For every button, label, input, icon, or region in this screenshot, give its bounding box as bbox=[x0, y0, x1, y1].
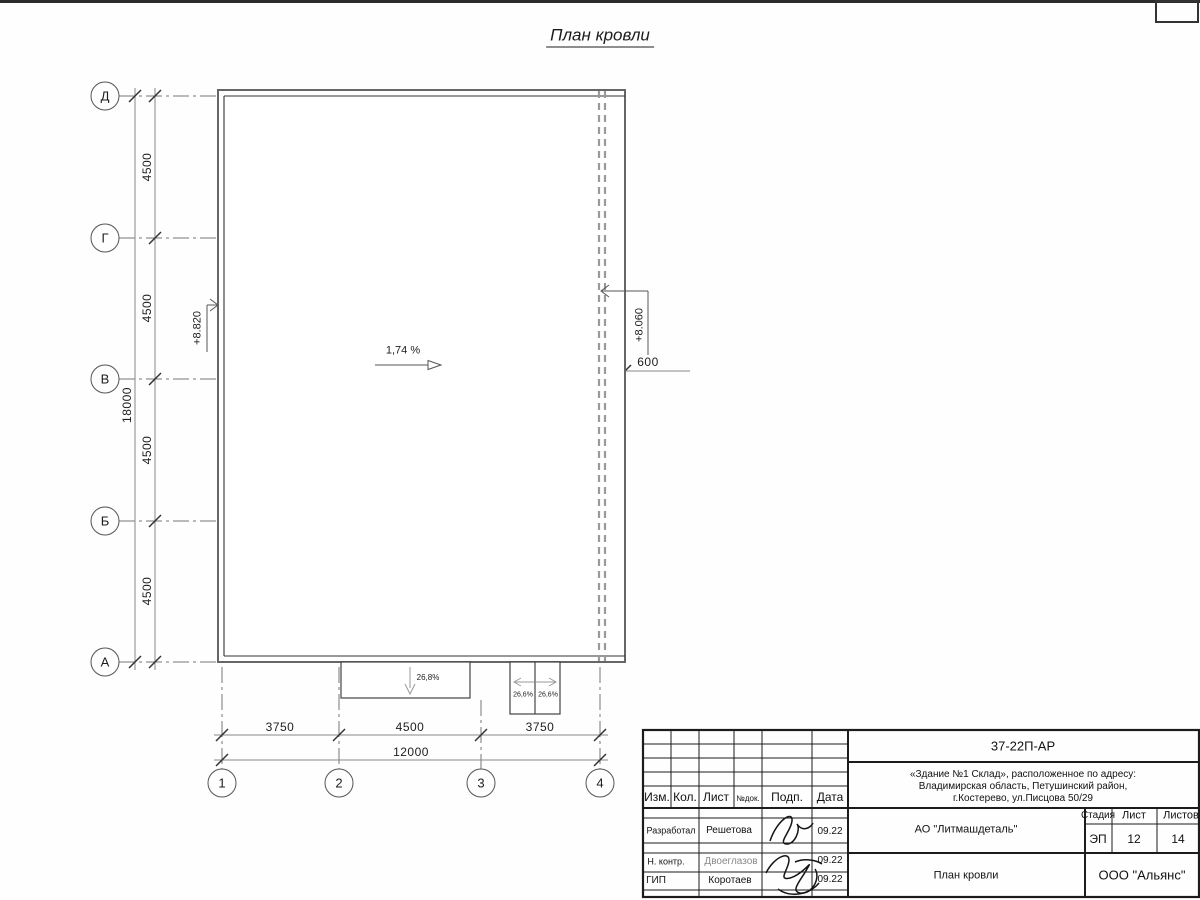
titleblock-header-ndok: №док. bbox=[736, 795, 759, 803]
dim-row-4: 4500 bbox=[141, 577, 153, 606]
titleblock-sheet-label: Лист bbox=[1122, 811, 1146, 822]
titleblock-address-line1: «Здание №1 Склад», расположенное по адре… bbox=[910, 770, 1136, 780]
main-slope-label: 1,74 % bbox=[386, 346, 420, 357]
corner-stamp-box bbox=[1156, 1, 1198, 22]
titleblock-name-gip: Коротаев bbox=[708, 876, 751, 886]
axis-row-label-d: Д bbox=[101, 90, 110, 103]
axis-row-label-g: Г bbox=[101, 232, 108, 245]
elevation-high-label: +8.820 bbox=[193, 311, 204, 345]
axis-col-label-1: 1 bbox=[218, 777, 225, 790]
titleblock-header-podp: Подп. bbox=[771, 791, 803, 803]
axis-col-label-3: 3 bbox=[477, 777, 484, 790]
dim-col-2: 4500 bbox=[396, 721, 425, 733]
drawing-title: План кровли bbox=[546, 27, 654, 48]
titleblock-name-razrabotal: Решетова bbox=[706, 826, 752, 836]
titleblock-company: ООО "Альянс" bbox=[1099, 869, 1186, 882]
signature-gip bbox=[766, 856, 822, 894]
canopy-slope-label: 26,8% bbox=[417, 674, 440, 682]
titleblock-header-kol: Кол. bbox=[673, 791, 697, 803]
titleblock-header-izm: Изм. bbox=[644, 791, 670, 803]
dim-col-1: 3750 bbox=[266, 721, 295, 733]
titleblock-header-list: Лист bbox=[703, 791, 729, 803]
titleblock-address-line2: Владимирская область, Петушинский район, bbox=[919, 782, 1128, 792]
roof-outline bbox=[218, 90, 625, 662]
axis-row-label-b: Б bbox=[101, 515, 110, 528]
titleblock-client: АО "Литмашдеталь" bbox=[915, 825, 1018, 836]
titleblock-date-gip: 09.22 bbox=[817, 875, 842, 885]
axis-col-label-2: 2 bbox=[335, 777, 342, 790]
titleblock-stage-value: ЭП bbox=[1089, 833, 1106, 845]
titleblock-sheet-value: 12 bbox=[1127, 833, 1140, 845]
titleblock-date-razrabotal: 09.22 bbox=[817, 827, 842, 837]
porch-slope-right-label: 26,6% bbox=[538, 692, 558, 699]
titleblock-doc-code: 37-22П-АР bbox=[991, 740, 1055, 753]
dim-col-3: 3750 bbox=[526, 721, 555, 733]
titleblock-sheets-value: 14 bbox=[1171, 833, 1184, 845]
roof-plan-drawing bbox=[0, 0, 1200, 900]
axis-col-label-4: 4 bbox=[596, 777, 603, 790]
axis-row-label-a: А bbox=[101, 656, 110, 669]
dim-gutter: 600 bbox=[637, 356, 659, 368]
titleblock-date-nkontr: 09.22 bbox=[817, 856, 842, 866]
titleblock-role-razrabotal: Разработал bbox=[647, 827, 696, 836]
signature-razrabotal bbox=[770, 816, 813, 844]
titleblock-name-nkontr: Двоеглазов bbox=[704, 857, 757, 867]
elevation-high-leader bbox=[207, 299, 218, 352]
titleblock-header-data: Дата bbox=[817, 791, 844, 803]
dim-row-total: 18000 bbox=[121, 387, 133, 423]
titleblock-sheets-label: Листов bbox=[1163, 811, 1199, 822]
canopy-outline bbox=[341, 662, 470, 698]
titleblock-role-gip: ГИП bbox=[646, 876, 666, 886]
dim-col-total: 12000 bbox=[393, 746, 429, 758]
dim-row-2: 4500 bbox=[141, 294, 153, 323]
porch-slope-left-label: 26,6% bbox=[513, 692, 533, 699]
titleblock-doc-title: План кровли bbox=[934, 871, 999, 882]
titleblock-stage-label: Стадия bbox=[1081, 811, 1115, 821]
dim-row-1: 4500 bbox=[141, 153, 153, 182]
drawing-sheet: План кровли Д Г В Б А 1 2 3 4 4500 4500 … bbox=[0, 0, 1200, 900]
dim-row-3: 4500 bbox=[141, 436, 153, 465]
titleblock-address-line3: г.Костерево, ул.Писцова 50/29 bbox=[953, 794, 1093, 804]
axis-row-label-v: В bbox=[101, 373, 110, 386]
elevation-low-label: +8.060 bbox=[635, 308, 646, 342]
titleblock-role-nkontr: Н. контр. bbox=[647, 858, 684, 867]
